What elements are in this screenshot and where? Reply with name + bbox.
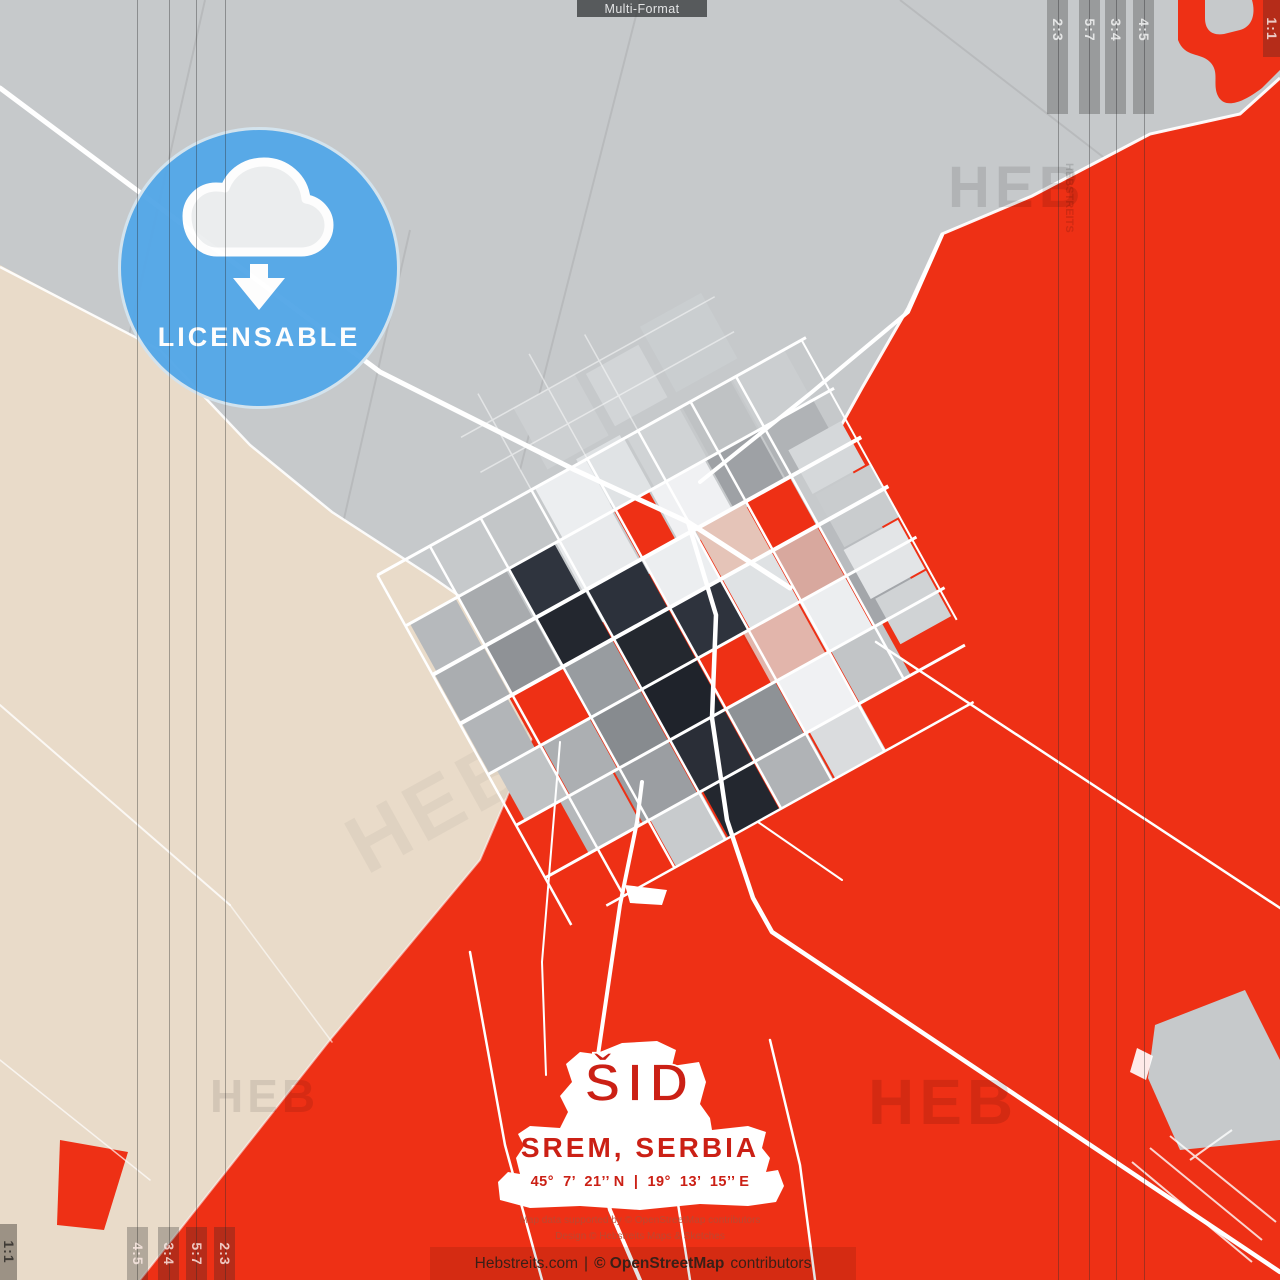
format-mark-4-5: 4:5 [1133, 0, 1154, 114]
format-mark-label: 3:4 [1108, 18, 1124, 41]
site-name: Hebstreits.com [475, 1255, 578, 1273]
watermark-text: HEBSTREITS [1063, 163, 1075, 233]
format-mark-label: 2:3 [1050, 18, 1066, 41]
format-mark-label: 5:7 [1082, 18, 1098, 41]
design-credit-line: Design © Hebstreits Maps & Sketches [0, 1229, 1280, 1244]
separator: | [584, 1255, 588, 1273]
attribution-bar: Hebstreits.com | © OpenStreetMap contrib… [430, 1247, 856, 1280]
licensable-badge: LICENSABLE [118, 127, 400, 409]
city-name: ŠID [0, 1052, 1280, 1114]
format-mark-label: 3:4 [161, 1242, 177, 1265]
map-credit-line: Map data supported by © OpenStreetMap co… [0, 1213, 1280, 1228]
poster-preview: HEBSTREITS [0, 0, 1280, 1280]
format-mark-1-1: 1:1 [1263, 0, 1280, 57]
city-coordinates: 45° 7’ 21’’ N | 19° 13’ 15’’ E [0, 1174, 1280, 1190]
city-region: SREM, SERBIA [0, 1132, 1280, 1164]
osm-contributors: contributors [730, 1255, 811, 1273]
format-mark-label: 4:5 [1136, 18, 1152, 41]
osm-credit: © OpenStreetMap [594, 1255, 724, 1273]
format-mark-label: 4:5 [130, 1242, 146, 1265]
format-mark-label: 2:3 [217, 1242, 233, 1265]
format-mark-3-4: 3:4 [1105, 0, 1126, 114]
badge-label: LICENSABLE [121, 322, 397, 353]
format-mark-2-3: 2:3 [1047, 0, 1068, 114]
format-mark-label: 1:1 [1264, 17, 1280, 40]
format-mark-label: 5:7 [189, 1242, 205, 1265]
format-banner: Multi-Format [577, 0, 707, 17]
format-mark-5-7: 5:7 [1079, 0, 1100, 114]
